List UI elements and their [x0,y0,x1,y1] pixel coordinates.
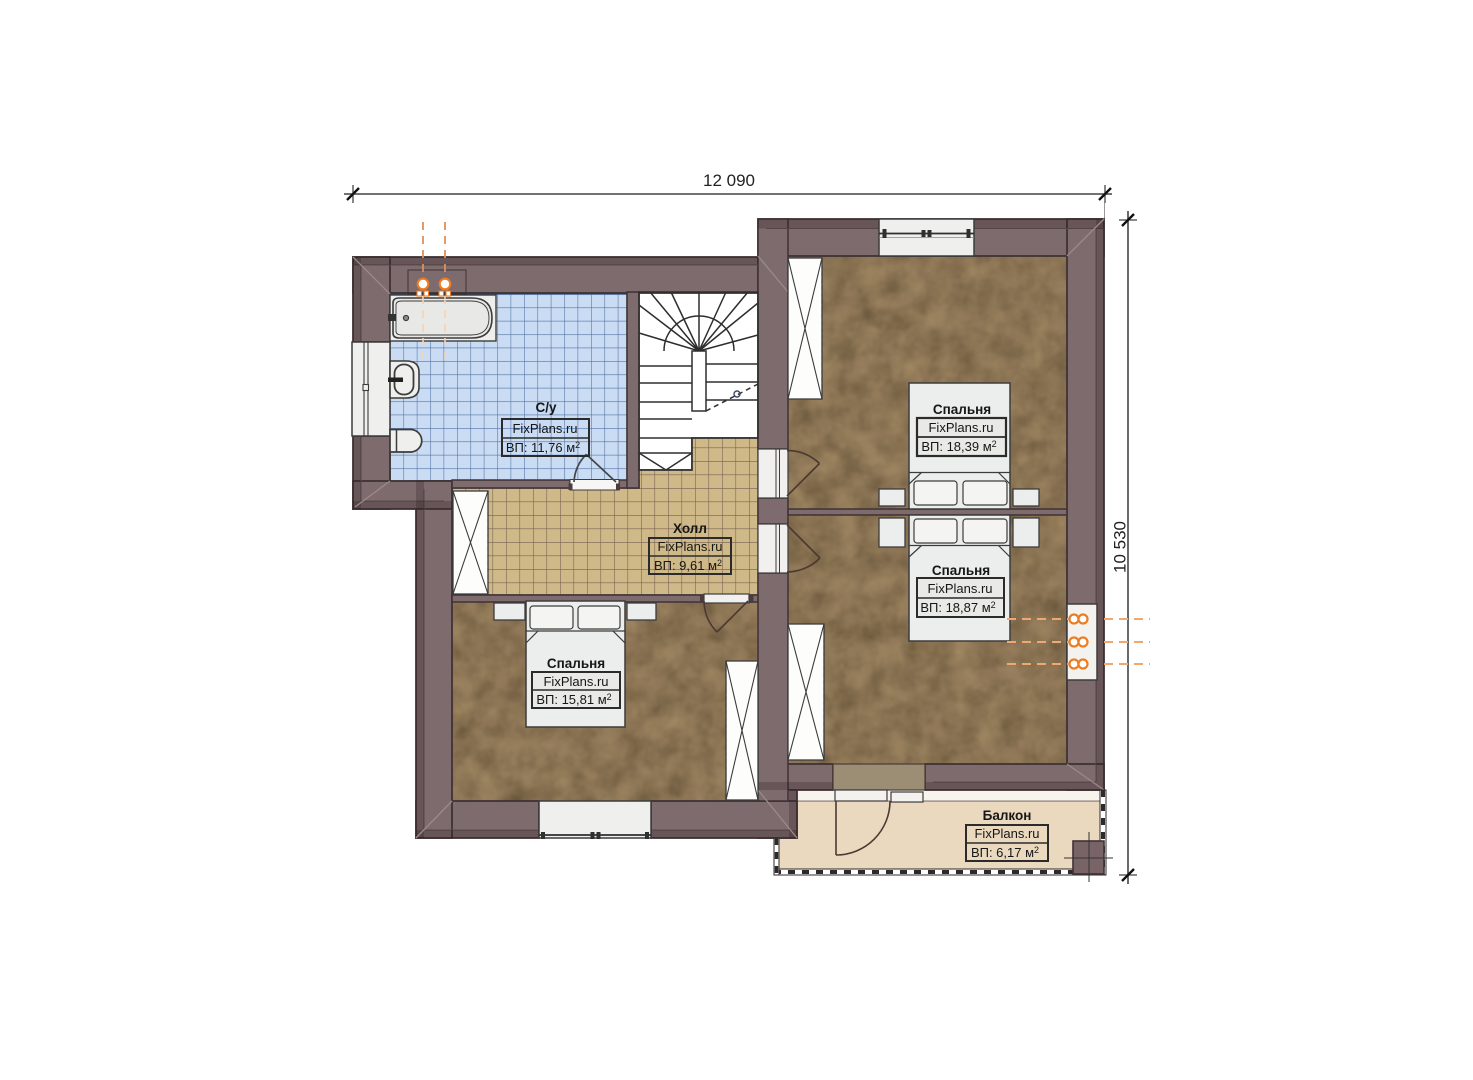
svg-text:Холл: Холл [673,521,707,536]
svg-text:С/у: С/у [535,400,557,415]
svg-text:FixPlans.ru: FixPlans.ru [974,826,1039,841]
svg-text:ВП: 15,81 м2: ВП: 15,81 м2 [536,692,611,707]
svg-text:ВП: 9,61 м2: ВП: 9,61 м2 [654,558,722,573]
svg-text:12 090: 12 090 [703,171,755,190]
svg-text:ВП: 18,87 м2: ВП: 18,87 м2 [920,600,995,615]
svg-text:Спальня: Спальня [932,563,990,578]
svg-text:Балкон: Балкон [983,808,1032,823]
svg-text:FixPlans.ru: FixPlans.ru [928,420,993,435]
svg-text:FixPlans.ru: FixPlans.ru [927,581,992,596]
svg-text:FixPlans.ru: FixPlans.ru [512,421,577,436]
svg-text:10 530: 10 530 [1111,521,1130,573]
svg-text:FixPlans.ru: FixPlans.ru [657,539,722,554]
svg-text:ВП: 11,76 м2: ВП: 11,76 м2 [506,440,580,455]
svg-text:ВП: 18,39 м2: ВП: 18,39 м2 [921,439,996,454]
svg-text:Спальня: Спальня [933,402,991,417]
svg-text:Спальня: Спальня [547,656,605,671]
svg-text:FixPlans.ru: FixPlans.ru [543,674,608,689]
svg-text:ВП: 6,17 м2: ВП: 6,17 м2 [971,845,1039,860]
